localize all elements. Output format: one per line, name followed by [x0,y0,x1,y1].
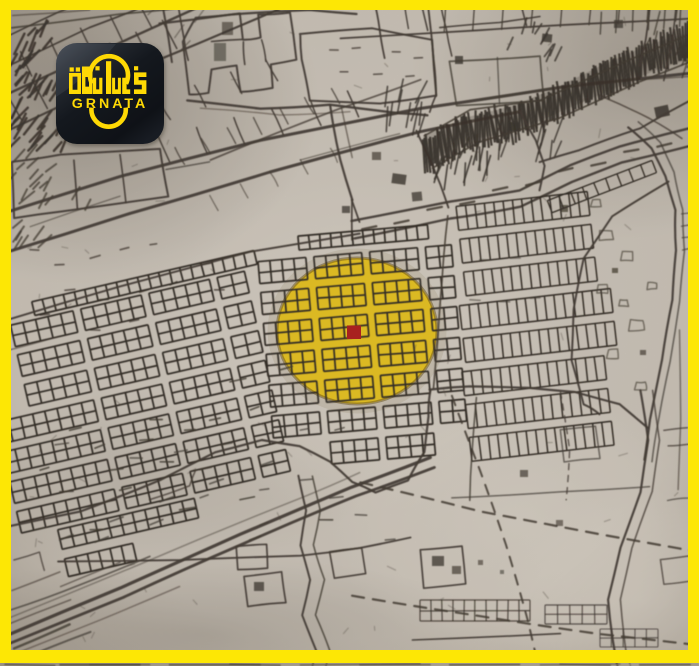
svg-text:GRNATA: GRNATA [72,96,149,112]
